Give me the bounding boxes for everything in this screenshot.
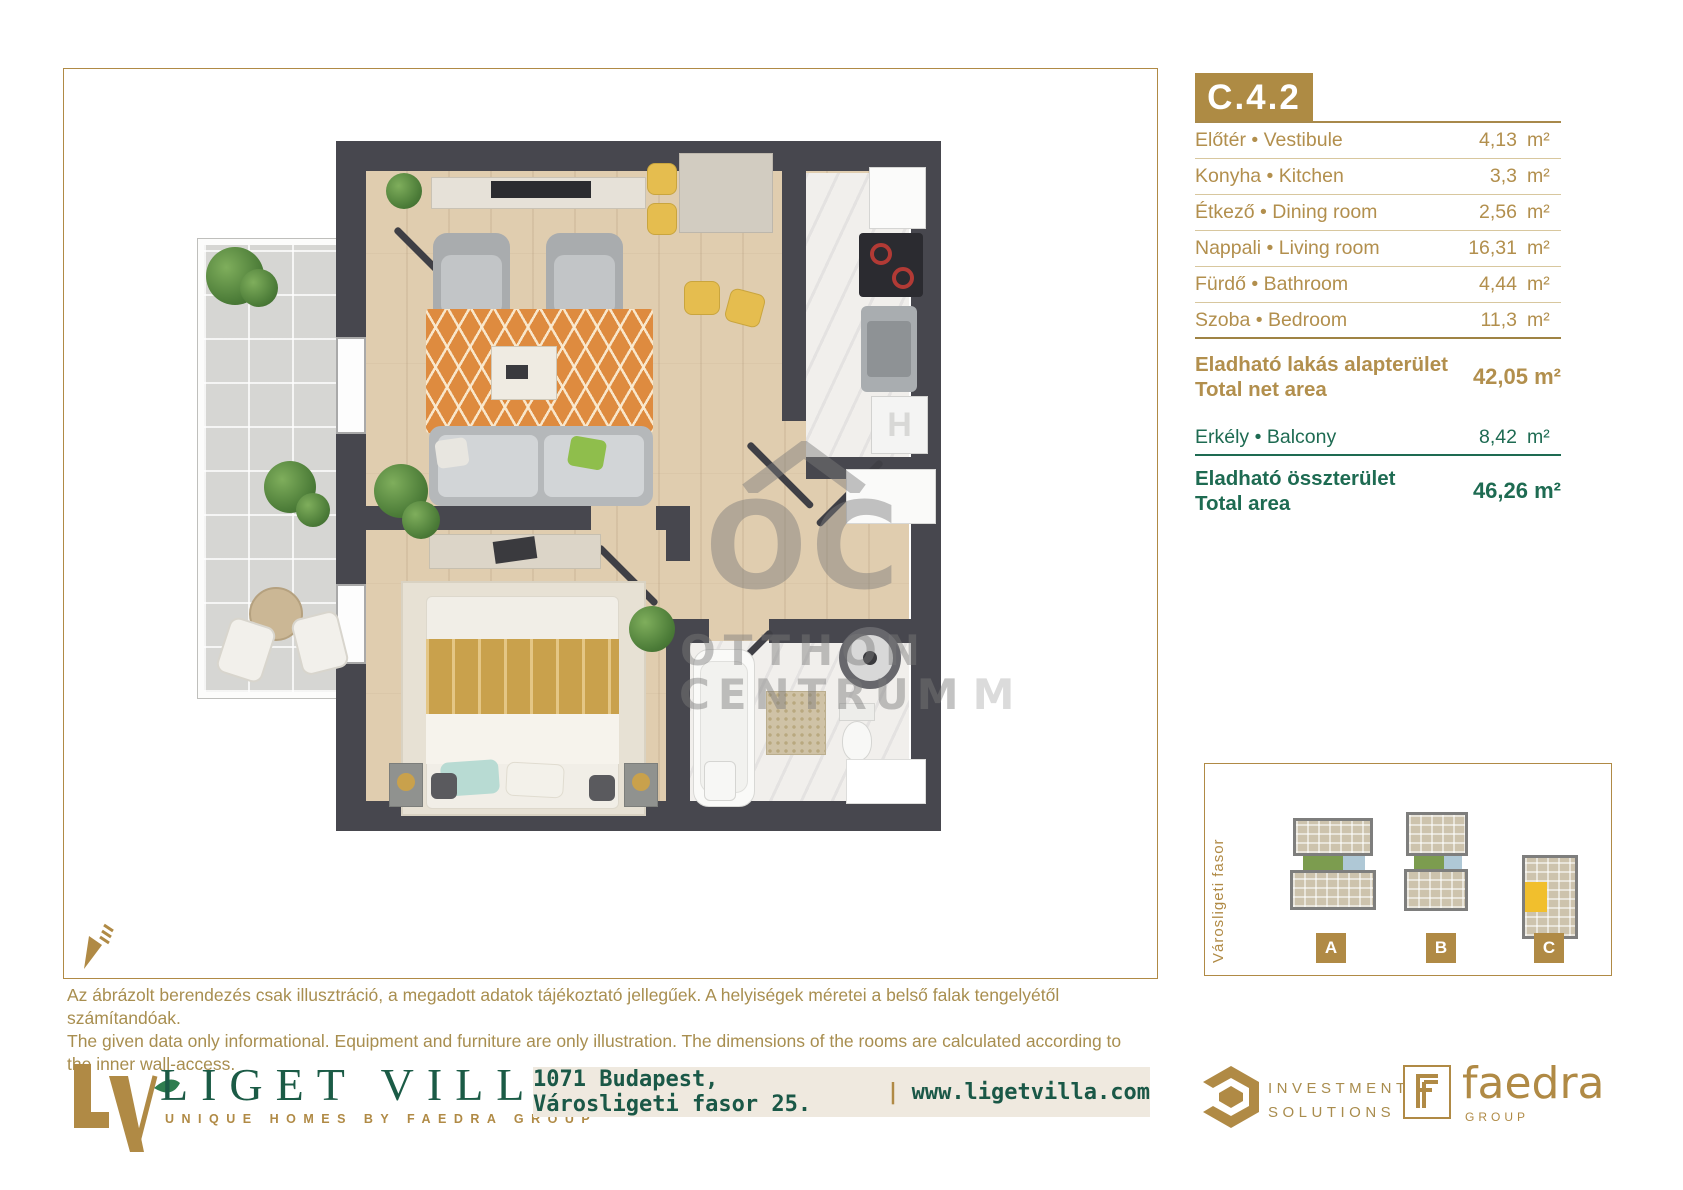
net-area-label-en: Total net area: [1195, 377, 1473, 402]
net-area-block: Eladható lakás alapterület Total net are…: [1195, 346, 1561, 408]
room-row-balcony: Erkély • Balcony 8,42 m²: [1195, 420, 1561, 456]
pillow-white: [505, 762, 565, 799]
address-bar: 1071 Budapest, Városligeti fasor 25. | w…: [533, 1067, 1150, 1117]
bed-cushion-dark-2: [589, 775, 615, 801]
dining-chair-2: [647, 203, 677, 235]
dining-chair-3: [684, 281, 720, 315]
plant-living-2: [402, 501, 440, 539]
investment-solutions-label: INVESTMENT SOLUTIONS: [1268, 1077, 1410, 1125]
building-a-bottom: [1290, 870, 1376, 910]
sofa-pillow-green: [567, 435, 608, 471]
tv: [491, 181, 591, 198]
building-c-unit-highlight: [1525, 882, 1547, 912]
total-area-label-hu: Eladható összterület: [1195, 466, 1473, 491]
room-row-living: Nappali • Living room 16,31 m²: [1195, 231, 1561, 267]
plant-bedroom: [629, 606, 675, 652]
total-area-label-en: Total area: [1195, 491, 1473, 516]
building-b-court-blue: [1444, 856, 1462, 869]
building-tag-b: B: [1426, 933, 1456, 963]
bed-cushion-dark-1: [431, 773, 457, 799]
brochure-page: H: [0, 0, 1683, 1190]
net-area-value: 42,05 m²: [1473, 364, 1561, 390]
building-a-court-blue: [1343, 856, 1365, 870]
building-a-court-green: [1303, 856, 1343, 870]
dining-table: [679, 153, 773, 233]
bed-blanket: [426, 639, 619, 714]
sofa-pillow-white: [434, 437, 470, 469]
burner-1: [870, 243, 892, 265]
net-area-label-hu: Eladható lakás alapterület: [1195, 352, 1473, 377]
bed-duvet: [426, 714, 619, 764]
lamp-1: [397, 773, 415, 791]
room-row-kitchen: Konyha • Kitchen 3,3 m²: [1195, 159, 1561, 195]
room-row-dining: Étkező • Dining room 2,56 m²: [1195, 195, 1561, 231]
room-row-bedroom: Szoba • Bedroom 11,3 m²: [1195, 303, 1561, 339]
building-tag-a: A: [1316, 933, 1346, 963]
elevator-tile: H: [871, 396, 928, 454]
dining-chair-1: [647, 163, 677, 195]
toilet-bowl: [842, 721, 872, 761]
building-b-court-green: [1414, 856, 1444, 869]
building-tag-c: C: [1534, 933, 1564, 963]
watermark-stray-m: M: [973, 670, 1023, 719]
fridge: [869, 167, 926, 229]
wall-top: [336, 141, 941, 171]
building-b-top: [1406, 812, 1468, 856]
plant-terrace-2: [240, 269, 278, 307]
total-area-block: Eladható összterület Total area 46,26 m²: [1195, 462, 1561, 520]
building-a-top: [1293, 818, 1373, 856]
wall-bedroom-bath-b: [666, 624, 690, 831]
website-text: www.ligetvilla.com: [912, 1080, 1150, 1105]
disclaimer-hu: Az ábrázolt berendezés csak illusztráció…: [67, 984, 1147, 1030]
address-separator: |: [886, 1080, 899, 1105]
kitchen-sink-basin: [867, 321, 911, 377]
unit-code-label: C.4.2: [1207, 78, 1301, 118]
total-area-value: 46,26 m²: [1473, 478, 1561, 504]
building-b-bottom: [1404, 869, 1468, 911]
address-text: 1071 Budapest, Városligeti fasor 25.: [533, 1067, 874, 1117]
street-label: Városligeti fasor: [1210, 788, 1227, 963]
faedra-group-label: GROUP: [1465, 1110, 1529, 1124]
north-arrow-icon: [74, 921, 118, 971]
elevator-letter: H: [887, 406, 912, 445]
hall-closet: [846, 469, 936, 524]
armchair-2-cushion: [554, 255, 615, 315]
plant-sideboard: [386, 173, 422, 209]
lamp-2: [632, 773, 650, 791]
room-row-bathroom: Fürdő • Bathroom 4,44 m²: [1195, 267, 1561, 303]
faedra-wordmark: faedra: [1462, 1058, 1605, 1109]
burner-2: [892, 267, 914, 289]
wall-left: [336, 141, 366, 831]
cooktop: [859, 233, 923, 297]
bath-rug: [766, 691, 826, 755]
wall-kitchen-divider: [782, 171, 806, 421]
investment-solutions-icon: [1200, 1064, 1262, 1130]
plant-terrace-4: [296, 493, 330, 527]
unit-code-badge: C.4.2: [1195, 73, 1313, 123]
room-row-vestibule: Előtér • Vestibule 4,13 m²: [1195, 123, 1561, 159]
brand-name: LIGET VILLA: [160, 1058, 584, 1111]
toilet-tank: [839, 703, 875, 721]
wall-bedroom-bath-a: [666, 506, 690, 561]
washer-door: [863, 651, 877, 665]
bidet: [704, 761, 736, 801]
armchair-1-cushion: [441, 255, 502, 315]
magazine: [506, 365, 528, 379]
utility-box: [846, 759, 926, 804]
floor-plan: H: [63, 68, 1158, 979]
faedra-icon: [1402, 1064, 1452, 1120]
terrace-door-window: [336, 337, 366, 434]
